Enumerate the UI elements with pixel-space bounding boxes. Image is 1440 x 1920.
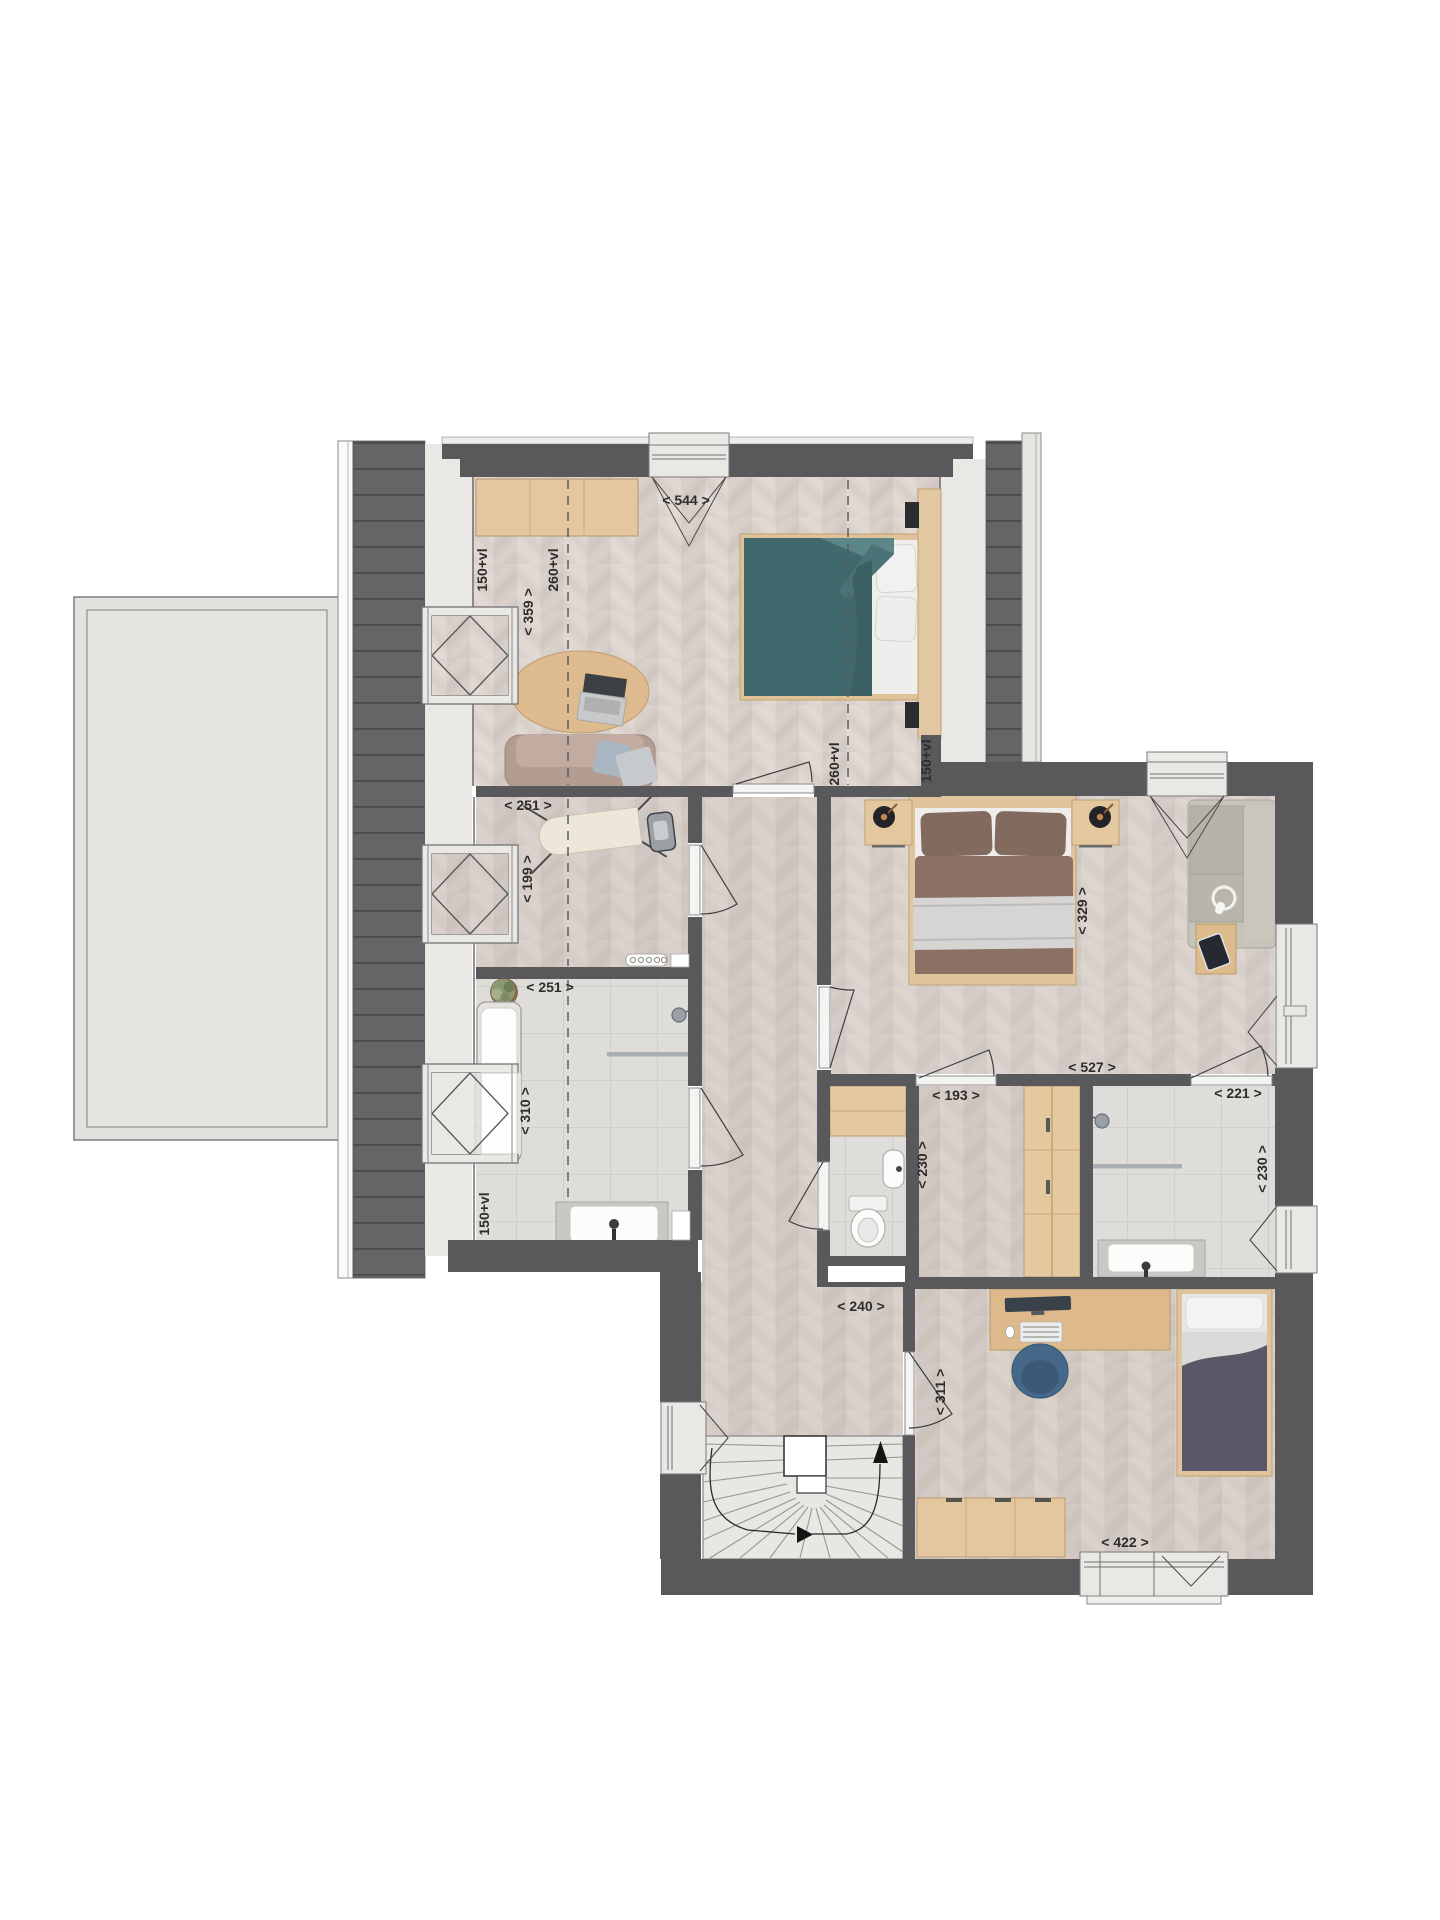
svg-text:< 199 >: < 199 >: [519, 855, 535, 903]
svg-text:< 251 >: < 251 >: [526, 979, 574, 995]
svg-text:< 359 >: < 359 >: [520, 588, 536, 636]
svg-text:< 311 >: < 311 >: [932, 1369, 948, 1416]
svg-text:< 251 >: < 251 >: [504, 797, 552, 813]
svg-text:260+vl: 260+vl: [545, 548, 561, 591]
svg-text:< 221 >: < 221 >: [1214, 1085, 1262, 1101]
svg-text:< 310 >: < 310 >: [517, 1087, 533, 1135]
svg-text:150+vl: 150+vl: [474, 548, 490, 591]
svg-text:< 230 >: < 230 >: [1254, 1145, 1270, 1193]
svg-text:< 527 >: < 527 >: [1068, 1059, 1116, 1075]
svg-text:150+vl: 150+vl: [476, 1192, 492, 1235]
svg-text:< 240 >: < 240 >: [837, 1298, 885, 1314]
svg-text:< 544 >: < 544 >: [662, 492, 710, 508]
svg-text:150+vl: 150+vl: [918, 739, 934, 782]
svg-text:< 193 >: < 193 >: [932, 1087, 980, 1103]
svg-text:260+vl: 260+vl: [826, 742, 842, 785]
svg-text:< 422 >: < 422 >: [1101, 1534, 1149, 1550]
svg-text:< 329 >: < 329 >: [1074, 887, 1090, 935]
svg-text:< 230 >: < 230 >: [914, 1141, 930, 1189]
